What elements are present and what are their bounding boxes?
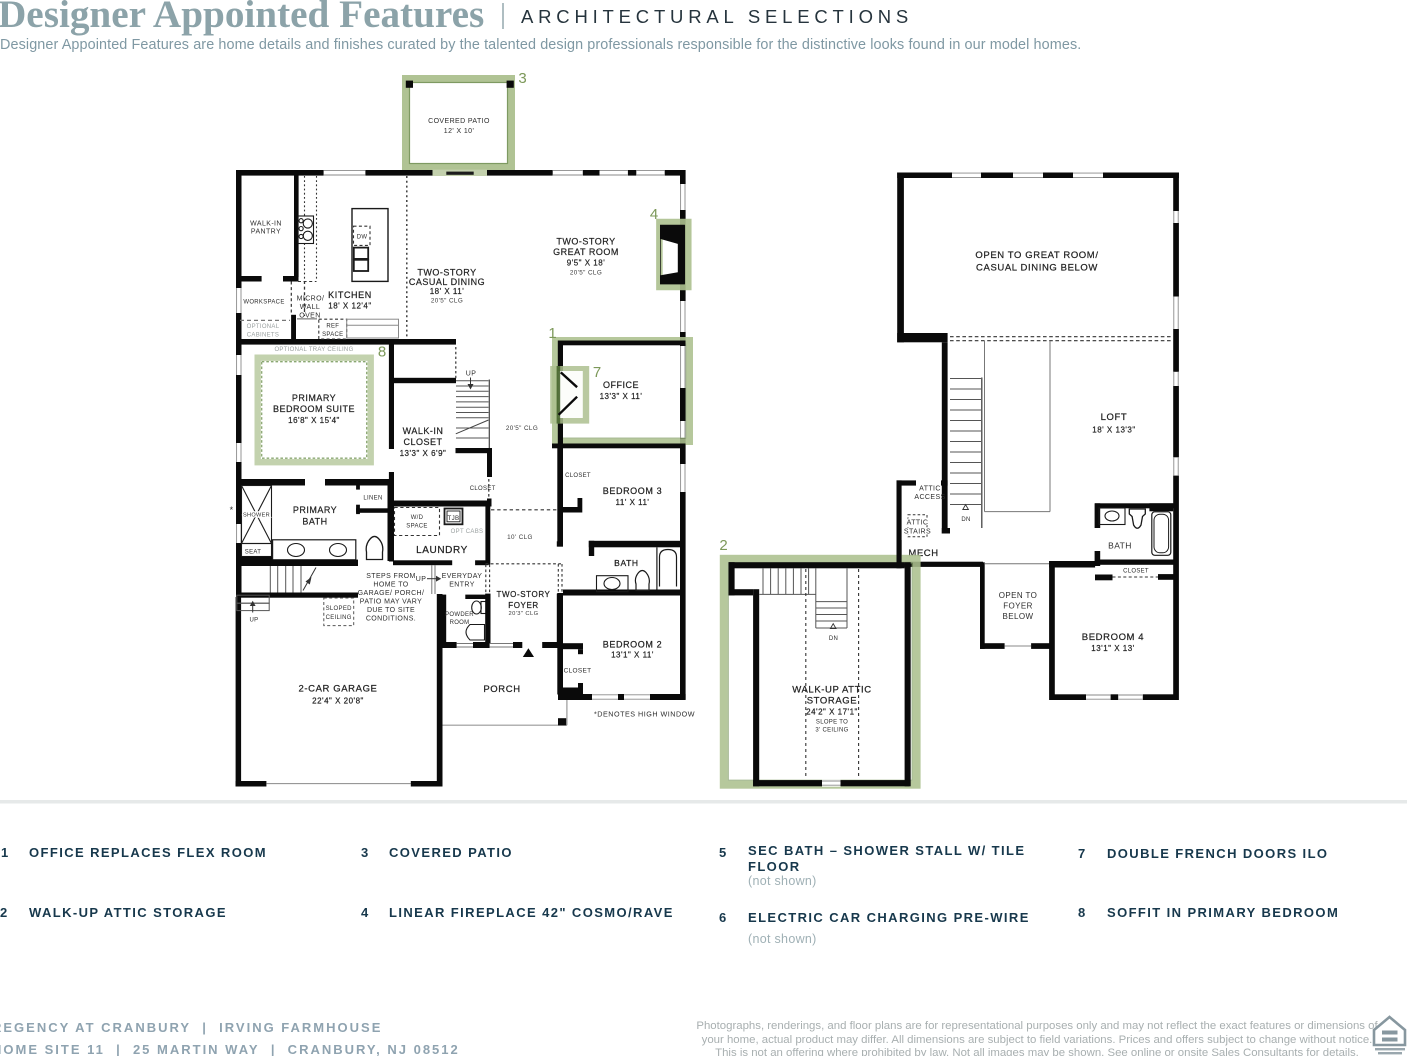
svg-text:7: 7: [593, 364, 601, 381]
svg-text:UP: UP: [416, 576, 427, 583]
svg-text:TWO-STORY: TWO-STORY: [556, 237, 615, 247]
svg-text:LINEAR FIREPLACE 42" COSMO/RAV: LINEAR FIREPLACE 42" COSMO/RAVE: [389, 905, 674, 920]
svg-text:SPACE: SPACE: [322, 332, 343, 338]
svg-text:PRIMARY: PRIMARY: [293, 505, 337, 515]
svg-text:DN: DN: [829, 636, 838, 642]
svg-text:13'3" X 6'9": 13'3" X 6'9": [400, 449, 447, 458]
svg-text:ATTIC: ATTIC: [919, 486, 941, 493]
svg-text:20'5" CLG: 20'5" CLG: [431, 298, 463, 305]
svg-text:LAUNDRY: LAUNDRY: [416, 545, 468, 556]
svg-text:ACCESS: ACCESS: [914, 494, 945, 501]
svg-text:CLOSET: CLOSET: [564, 668, 592, 675]
svg-text:OPTIONAL: OPTIONAL: [247, 324, 280, 330]
svg-text:BATH: BATH: [302, 517, 327, 527]
svg-text:STAIRS: STAIRS: [904, 529, 931, 536]
svg-text:BEDROOM SUITE: BEDROOM SUITE: [273, 404, 355, 414]
svg-text:OFFICE REPLACES FLEX ROOM: OFFICE REPLACES FLEX ROOM: [29, 845, 267, 860]
svg-text:ATTIC: ATTIC: [907, 520, 929, 527]
svg-text:GREAT ROOM: GREAT ROOM: [553, 247, 619, 257]
svg-text:10' CLG: 10' CLG: [507, 534, 533, 541]
svg-text:9'5" X 18': 9'5" X 18': [567, 259, 605, 268]
svg-text:18' X 11': 18' X 11': [430, 287, 465, 296]
svg-text:SPACE: SPACE: [406, 524, 427, 530]
svg-text:SEAT: SEAT: [245, 550, 261, 556]
svg-text:TWO-STORY: TWO-STORY: [417, 268, 476, 278]
svg-text:4: 4: [361, 905, 370, 920]
svg-text:BELOW: BELOW: [1003, 612, 1034, 621]
svg-text:5: 5: [719, 845, 728, 860]
svg-text:This is not an offering where: This is not an offering where prohibited…: [715, 1047, 1359, 1056]
svg-text:7: 7: [1078, 846, 1087, 861]
svg-text:CLOSET: CLOSET: [1123, 569, 1149, 575]
svg-text:CEILING: CEILING: [326, 615, 352, 621]
svg-text:PATIO MAY VARY: PATIO MAY VARY: [360, 599, 422, 606]
svg-text:Designer Appointed Features: Designer Appointed Features: [0, 0, 484, 36]
svg-text:GARAGE/ PORCH/: GARAGE/ PORCH/: [358, 590, 425, 597]
svg-text:Designer Appointed Features ar: Designer Appointed Features are home det…: [0, 37, 1081, 53]
svg-text:HOME TO: HOME TO: [373, 582, 408, 589]
svg-text:OPTIONAL TRAY CEILING: OPTIONAL TRAY CEILING: [274, 347, 353, 353]
svg-text:ELECTRIC CAR CHARGING PRE-WIRE: ELECTRIC CAR CHARGING PRE-WIRE: [748, 910, 1030, 925]
svg-text:13'3" X 11': 13'3" X 11': [600, 392, 643, 401]
svg-text:W/D: W/D: [411, 515, 424, 521]
svg-text:CLOSET: CLOSET: [470, 486, 496, 492]
svg-text:*: *: [230, 505, 234, 515]
svg-text:CABINETS: CABINETS: [247, 333, 279, 339]
svg-text:WALK-IN: WALK-IN: [250, 221, 282, 228]
svg-text:FLOOR: FLOOR: [748, 859, 801, 874]
svg-text:CONDITIONS.: CONDITIONS.: [366, 616, 416, 623]
svg-text:8: 8: [1078, 905, 1087, 920]
svg-text:3: 3: [361, 845, 370, 860]
svg-text:ENTRY: ENTRY: [449, 582, 475, 589]
svg-text:CLOSET: CLOSET: [565, 473, 591, 479]
svg-text:DN: DN: [961, 517, 970, 523]
svg-text:POWDER: POWDER: [445, 612, 474, 618]
svg-text:22'4" X 20'8": 22'4" X 20'8": [312, 697, 364, 706]
svg-text:1: 1: [548, 325, 556, 342]
svg-text:UP: UP: [466, 371, 477, 378]
svg-text:13'1" X 13': 13'1" X 13': [1091, 644, 1134, 653]
svg-text:REGENCY AT CRANBURY | IRVING: REGENCY AT CRANBURY | IRVING FARMHOUSE: [0, 1020, 382, 1035]
svg-text:ARCHITECTURAL SELECTIONS: ARCHITECTURAL SELECTIONS: [521, 6, 913, 27]
svg-text:PORCH: PORCH: [483, 684, 520, 695]
svg-text:SLOPE TO: SLOPE TO: [816, 720, 848, 726]
svg-text:UP: UP: [250, 618, 259, 624]
svg-text:LOFT: LOFT: [1101, 412, 1128, 423]
svg-text:1: 1: [1, 845, 10, 860]
svg-text:ROOM: ROOM: [450, 620, 470, 626]
svg-text:TJB: TJB: [448, 515, 460, 522]
svg-text:12' X 10': 12' X 10': [444, 128, 474, 135]
svg-text:WALK-UP ATTIC STORAGE: WALK-UP ATTIC STORAGE: [29, 905, 227, 920]
svg-text:SEC BATH – SHOWER STALL W/ TIL: SEC BATH – SHOWER STALL W/ TILE: [748, 843, 1025, 858]
svg-text:Photographs, renderings, and f: Photographs, renderings, and floor plans…: [696, 1020, 1378, 1032]
svg-text:COVERED PATIO: COVERED PATIO: [389, 845, 513, 860]
svg-text:SLOPED: SLOPED: [326, 606, 353, 612]
svg-text:COVERED PATIO: COVERED PATIO: [428, 118, 490, 125]
svg-text:DW: DW: [357, 235, 368, 241]
svg-text:OPT CABS: OPT CABS: [451, 529, 484, 535]
svg-text:MICRO/: MICRO/: [297, 296, 325, 303]
svg-text:BATH: BATH: [1108, 541, 1132, 551]
svg-text:CASUAL DINING BELOW: CASUAL DINING BELOW: [976, 263, 1098, 274]
svg-text:BEDROOM 4: BEDROOM 4: [1082, 632, 1144, 643]
svg-text:STORAGE: STORAGE: [807, 696, 857, 707]
svg-text:2: 2: [0, 905, 9, 920]
svg-text:FOYER: FOYER: [508, 601, 539, 610]
svg-text:EVERYDAY: EVERYDAY: [442, 573, 483, 580]
svg-text:HOME SITE 11 | 25 MARTIN WAY: HOME SITE 11 | 25 MARTIN WAY | CRANBURY,…: [0, 1042, 460, 1056]
svg-text:6: 6: [719, 910, 728, 925]
svg-text:SOFFIT IN PRIMARY BEDROOM: SOFFIT IN PRIMARY BEDROOM: [1107, 905, 1339, 920]
svg-text:LINEN: LINEN: [363, 496, 382, 502]
svg-text:BEDROOM 3: BEDROOM 3: [603, 486, 662, 496]
svg-text:CLOSET: CLOSET: [403, 437, 442, 447]
svg-text:PRIMARY: PRIMARY: [292, 393, 336, 403]
svg-text:BEDROOM 2: BEDROOM 2: [603, 640, 662, 650]
svg-text:(not shown): (not shown): [748, 874, 817, 888]
svg-text:18' X 13'3": 18' X 13'3": [1092, 426, 1135, 435]
svg-text:*DENOTES HIGH WINDOW: *DENOTES HIGH WINDOW: [594, 710, 695, 719]
svg-text:WALL: WALL: [300, 304, 320, 311]
svg-text:13'1" X 11': 13'1" X 11': [611, 651, 654, 660]
svg-text:TWO-STORY: TWO-STORY: [497, 590, 551, 599]
svg-text:CASUAL DINING: CASUAL DINING: [409, 277, 485, 287]
svg-text:OPEN TO: OPEN TO: [999, 591, 1038, 600]
svg-text:3' CEILING: 3' CEILING: [815, 728, 848, 734]
svg-text:your home, actual product may: your home, actual product may differ. Al…: [702, 1034, 1373, 1046]
svg-text:PANTRY: PANTRY: [251, 229, 281, 236]
svg-text:3: 3: [518, 70, 526, 87]
svg-text:BATH: BATH: [614, 558, 638, 568]
svg-text:24'2" X 17'1": 24'2" X 17'1": [806, 708, 858, 717]
svg-text:4: 4: [650, 206, 658, 223]
svg-text:WALK-UP ATTIC: WALK-UP ATTIC: [792, 685, 871, 696]
svg-text:(not shown): (not shown): [748, 932, 817, 946]
svg-text:WORKSPACE: WORKSPACE: [243, 300, 284, 306]
svg-text:FOYER: FOYER: [1003, 602, 1033, 611]
svg-text:16'8" X 15'4": 16'8" X 15'4": [288, 416, 340, 425]
svg-text:20'5" CLG: 20'5" CLG: [506, 425, 538, 432]
svg-text:18' X 12'4": 18' X 12'4": [328, 302, 371, 311]
svg-text:REF: REF: [326, 324, 339, 330]
svg-text:WALK-IN: WALK-IN: [403, 426, 444, 436]
svg-text:OPEN TO GREAT ROOM/: OPEN TO GREAT ROOM/: [975, 250, 1098, 261]
svg-text:DUE TO SITE: DUE TO SITE: [367, 607, 415, 614]
svg-text:OFFICE: OFFICE: [603, 380, 639, 390]
svg-text:2: 2: [719, 537, 727, 554]
svg-text:11' X 11': 11' X 11': [616, 498, 650, 507]
svg-text:SHOWER: SHOWER: [243, 513, 270, 519]
svg-text:20'5" CLG: 20'5" CLG: [570, 270, 602, 277]
svg-text:20'3" CLG: 20'3" CLG: [509, 611, 539, 617]
svg-text:STEPS FROM: STEPS FROM: [366, 573, 416, 580]
svg-text:KITCHEN: KITCHEN: [328, 290, 372, 300]
svg-text:8: 8: [378, 344, 386, 361]
svg-text:OVEN: OVEN: [299, 313, 320, 320]
svg-text:DOUBLE FRENCH DOORS ILO: DOUBLE FRENCH DOORS ILO: [1107, 846, 1328, 861]
svg-text:2-CAR GARAGE: 2-CAR GARAGE: [299, 684, 378, 695]
